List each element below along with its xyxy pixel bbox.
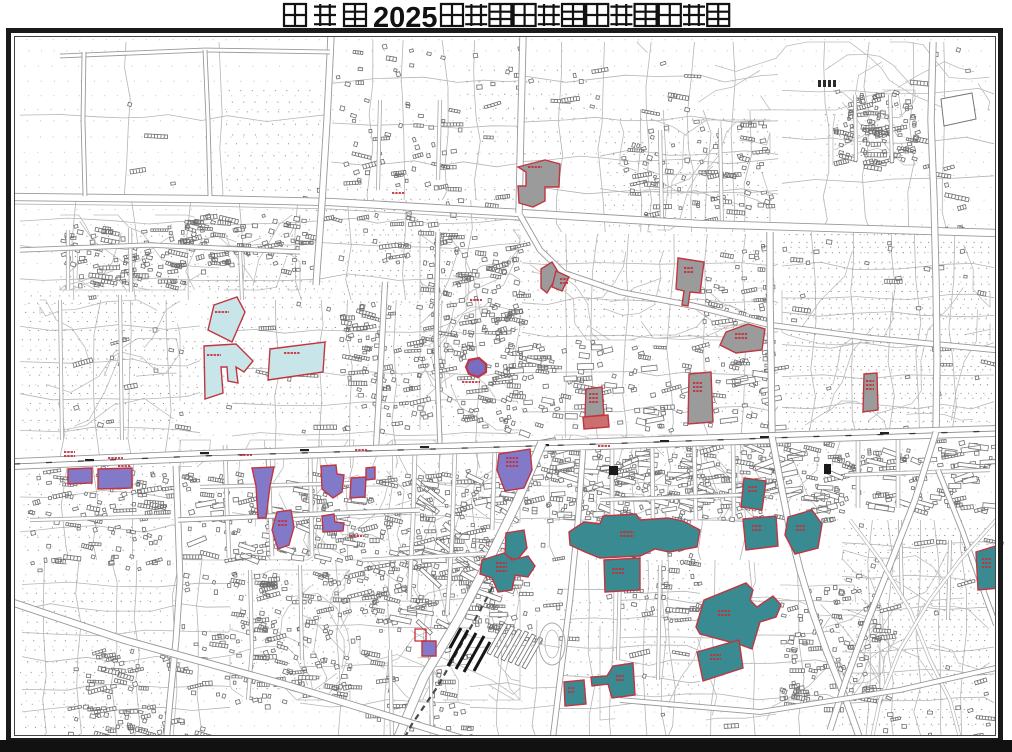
svg-text:2025: 2025 [373, 2, 438, 34]
